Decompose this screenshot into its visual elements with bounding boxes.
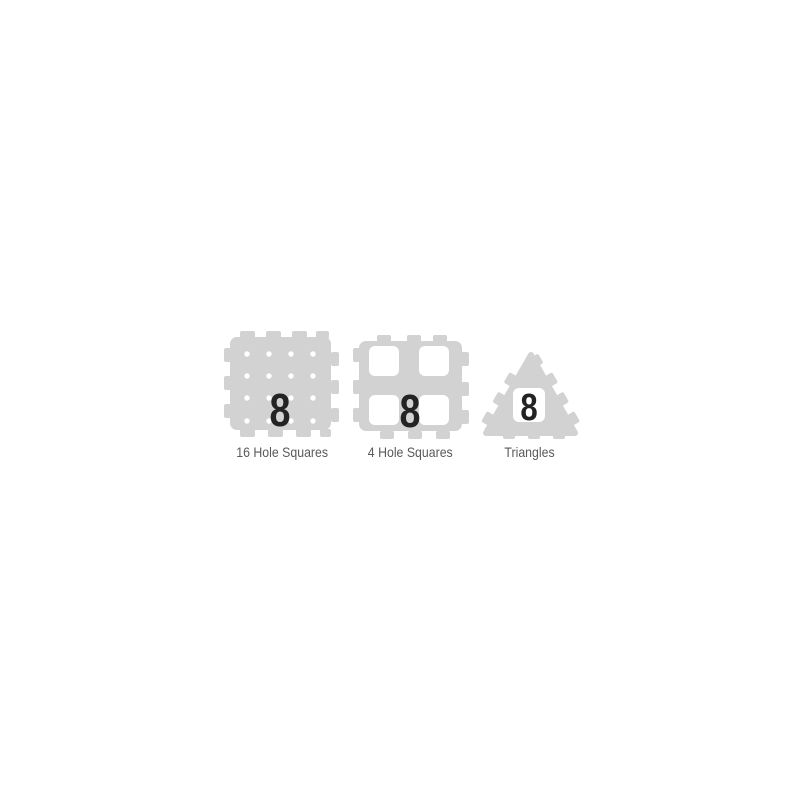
- label-16-hole-squares: 16 Hole Squares: [222, 443, 342, 461]
- piece-count: 8: [400, 385, 421, 436]
- shape-quantity-diagram: 8: [0, 0, 800, 800]
- sixteen-hole-square-tile-icon: 8: [222, 330, 342, 438]
- shape-card-16-hole-squares: 8: [222, 330, 342, 443]
- label-triangles: Triangles: [478, 443, 582, 461]
- label-text: Triangles: [505, 443, 555, 461]
- label-4-hole-squares: 4 Hole Squares: [350, 443, 470, 461]
- four-hole-square-tile-icon: 8: [350, 332, 470, 444]
- label-text: 4 Hole Squares: [368, 443, 453, 461]
- shape-card-triangles: 8: [478, 342, 582, 447]
- label-text: 16 Hole Squares: [236, 443, 328, 461]
- shape-card-4-hole-squares: 8: [350, 332, 470, 449]
- triangle-tile-icon: 8: [478, 342, 582, 442]
- piece-count: 8: [270, 384, 291, 435]
- piece-count: 8: [520, 387, 537, 429]
